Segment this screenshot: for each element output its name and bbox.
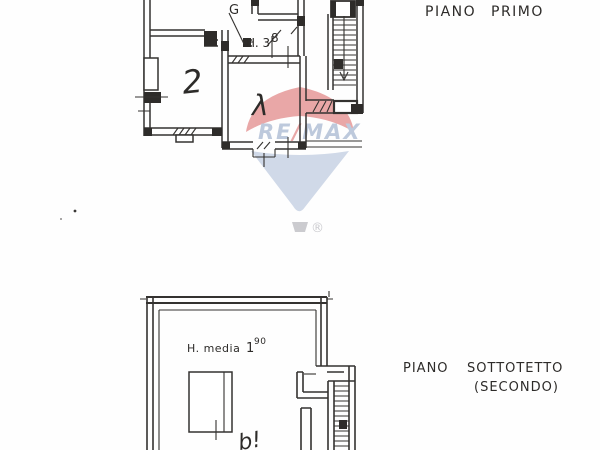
floor2-word2: SOTTOTETTO [467, 361, 563, 376]
scan-speck [74, 210, 77, 213]
wordmark-max: MAX [302, 120, 361, 144]
height-first-sup: 8 [271, 31, 279, 45]
scan-speck [60, 218, 62, 220]
floorplan-canvas: RE/MAX ® [0, 0, 600, 450]
remax-wordmark: RE/MAX [258, 120, 362, 144]
room-mark-left: 2 [180, 62, 204, 102]
room-mark-top: G [229, 3, 239, 18]
height-first-label: H. 3 [246, 36, 270, 50]
wordmark-re: RE [258, 120, 293, 144]
balloon-bottom-fan [251, 151, 349, 211]
staircase-first-floor [328, 1, 356, 90]
entry-step [176, 135, 193, 142]
height-note-attic: H. media 1 90 [187, 337, 266, 356]
room-mark-attic: b! [236, 427, 263, 450]
balloon-basket-icon [292, 222, 308, 232]
roof-opening [189, 372, 232, 432]
height-attic-label: H. media [187, 342, 240, 355]
room-mark-center: λ [250, 89, 269, 122]
attic-floor-sublabel: (SECONDO) [474, 380, 559, 395]
floor2-word1: PIANO [403, 361, 449, 376]
window-left-wall [144, 58, 158, 90]
staircase-attic [328, 381, 355, 450]
registered-symbol: ® [311, 221, 324, 236]
attic-floor-label: PIANO SOTTOTETTO [403, 361, 563, 376]
height-attic-sup: 90 [254, 337, 266, 347]
handwritten-annotations: PIANO PRIMO PIANO SOTTOTETTO (SECONDO) H… [180, 3, 563, 450]
first-floor-label: PIANO PRIMO [425, 4, 544, 20]
floor1-word1: PIANO [425, 4, 476, 20]
attic-floor-plan [140, 291, 355, 450]
floorplan-document: RE/MAX ® [0, 0, 600, 450]
floor1-word2: PRIMO [491, 4, 544, 20]
height-note-first: H. 3 8 [246, 31, 279, 50]
